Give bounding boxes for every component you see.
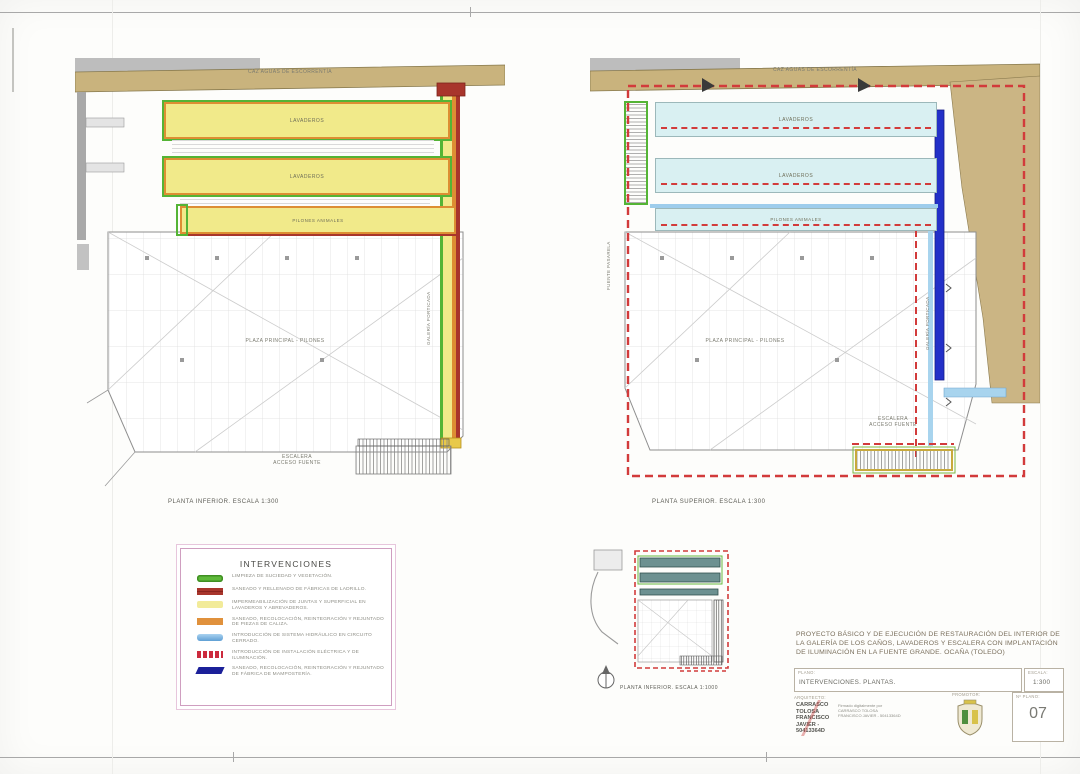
legend-swatch-darkblue: [195, 667, 224, 674]
pilones-bar-label-upper: PILONES ANIMALES: [770, 217, 821, 222]
plano-field-value: INTERVENCIONES. PLANTAS.: [799, 679, 896, 686]
caption-plan-upper: PLANTA SUPERIOR. ESCALA 1:300: [652, 499, 765, 505]
caz-label-lower: CAZ AGUAS DE ESCORRENTÍA: [75, 69, 505, 75]
bottom-registration-tick-left: [233, 752, 234, 762]
plano-field-label: PLANO:: [798, 670, 815, 675]
legend-item: INTRODUCCIÓN DE INSTALACIÓN ELÉCTRICA Y …: [197, 650, 391, 662]
top-registration-tick: [470, 7, 471, 17]
escala-field-box: ESCALA: 1:300: [1024, 668, 1064, 692]
signature-text: Firmado digitalmente por CARRASCO TOLOSA…: [838, 703, 902, 719]
pilones-bar-upper: PILONES ANIMALES: [655, 208, 937, 231]
legend-item-label: SANEADO Y RELLENADO DE FÁBRICAS DE LADRI…: [232, 587, 384, 595]
gallery-label-lower: GALERÍA PORTICADA: [426, 292, 431, 345]
legend-item-label: IMPERMEABILIZACIÓN DE JUNTAS Y SUPERFICI…: [232, 600, 384, 612]
margin-text-mark: [12, 28, 14, 92]
plaza-label-upper: PLAZA PRINCIPAL - PILONES: [660, 338, 830, 344]
fold-line-right: [1040, 0, 1041, 774]
signature-mark: [794, 700, 828, 736]
sheet-bottom-frame-line: [0, 757, 1080, 758]
north-arrow-icon: [598, 665, 614, 688]
legend-item-label: INTRODUCCIÓN DE SISTEMA HIDRÁULICO EN CI…: [232, 633, 384, 645]
legend-swatch-yellow: [197, 601, 223, 608]
lavaderos-bar-2-label: LAVADEROS: [290, 174, 324, 180]
legend-swatch-orange: [197, 618, 223, 625]
sheet-top-frame-line: [0, 12, 1080, 13]
gallery-label-upper: GALERÍA PORTICADA: [925, 297, 930, 350]
electric-dash-line: [661, 224, 931, 226]
legend-item: SANEADO, RECOLOCACIÓN, REINTEGRACIÓN Y R…: [197, 617, 391, 629]
bench-lines-lower-2: [180, 196, 430, 204]
lavaderos-bar-2-upper: LAVADEROS: [655, 158, 937, 193]
plano-num-label: Nº PLANO:: [1016, 694, 1040, 699]
legend-swatch-green: [197, 575, 223, 582]
caz-label-upper: CAZ AGUAS DE ESCORRENTÍA: [590, 67, 1040, 73]
legend-item: LIMPIEZA DE SUCIEDAD Y VEGETACIÓN.: [197, 574, 391, 582]
lavaderos-bar-1-label: LAVADEROS: [290, 118, 324, 124]
plano-field-box: PLANO: INTERVENCIONES. PLANTAS.: [794, 668, 1022, 692]
legend-item-label: SANEADO, RECOLOCACIÓN, REINTEGRACIÓN Y R…: [232, 666, 384, 678]
legend-title: INTERVENCIONES: [181, 559, 391, 569]
pilones-bar-lower: PILONES ANIMALES: [180, 206, 456, 234]
electric-dash-line: [661, 183, 931, 185]
lavaderos-bar-2-lower: LAVADEROS: [164, 158, 450, 195]
legend-item: INTRODUCCIÓN DE SISTEMA HIDRÁULICO EN CI…: [197, 633, 391, 645]
coat-of-arms-icon: [955, 699, 985, 737]
drawing-sheet: CAZ AGUAS DE ESCORRENTÍA LAVADEROS LAVAD…: [0, 0, 1080, 774]
legend-item-label: SANEADO, RECOLOCACIÓN, REINTEGRACIÓN Y R…: [232, 617, 384, 629]
pilones-bar-label: PILONES ANIMALES: [292, 218, 343, 223]
bench-lines-lower-1: [172, 140, 434, 153]
caption-key-plan: PLANTA INFERIOR. ESCALA 1:1000: [620, 685, 718, 691]
lavaderos-bar-1-upper: LAVADEROS: [655, 102, 937, 137]
pilones-green-cap: [176, 204, 188, 236]
legend-item-label: INTRODUCCIÓN DE INSTALACIÓN ELÉCTRICA Y …: [232, 650, 384, 662]
project-title: PROYECTO BÁSICO Y DE EJECUCIÓN DE RESTAU…: [796, 630, 1062, 657]
bottom-registration-tick-right: [766, 752, 767, 762]
caption-plan-lower: PLANTA INFERIOR. ESCALA 1:300: [168, 499, 279, 505]
legend-box: INTERVENCIONES LIMPIEZA DE SUCIEDAD Y VE…: [180, 548, 392, 706]
legend-swatch-blue: [197, 634, 223, 641]
legend-swatch-brick: [197, 588, 223, 595]
pasarela-label-upper: FUENTE PASARELA: [606, 241, 611, 290]
legend-item-label: LIMPIEZA DE SUCIEDAD Y VEGETACIÓN.: [232, 574, 384, 582]
plano-num-box: Nº PLANO: 07: [1012, 692, 1064, 742]
lavaderos-bar-2-label-upper: LAVADEROS: [779, 173, 813, 179]
plano-num-value: 07: [1013, 705, 1063, 723]
stairs-label-lower: ESCALERA ACCESO FUENTE: [262, 454, 332, 466]
legend-item: IMPERMEABILIZACIÓN DE JUNTAS Y SUPERFICI…: [197, 600, 391, 612]
escala-field-value: 1:300: [1033, 679, 1050, 686]
legend-item: SANEADO Y RELLENADO DE FÁBRICAS DE LADRI…: [197, 587, 391, 595]
key-plan-drawing: [588, 538, 748, 706]
legend-swatch-red-dash: [197, 651, 223, 658]
stairs-label-upper: ESCALERA ACCESO FUENTE: [858, 416, 928, 428]
escala-field-label: ESCALA:: [1028, 670, 1048, 675]
legend-item: SANEADO, RECOLOCACIÓN, REINTEGRACIÓN Y R…: [197, 666, 391, 678]
promotor-label: PROMOTOR:: [952, 692, 980, 697]
electric-dash-line: [661, 127, 931, 129]
lavaderos-bar-1-label-upper: LAVADEROS: [779, 117, 813, 123]
lavaderos-bar-1-lower: LAVADEROS: [164, 102, 450, 139]
plaza-label-lower: PLAZA PRINCIPAL - PILONES: [200, 338, 370, 344]
